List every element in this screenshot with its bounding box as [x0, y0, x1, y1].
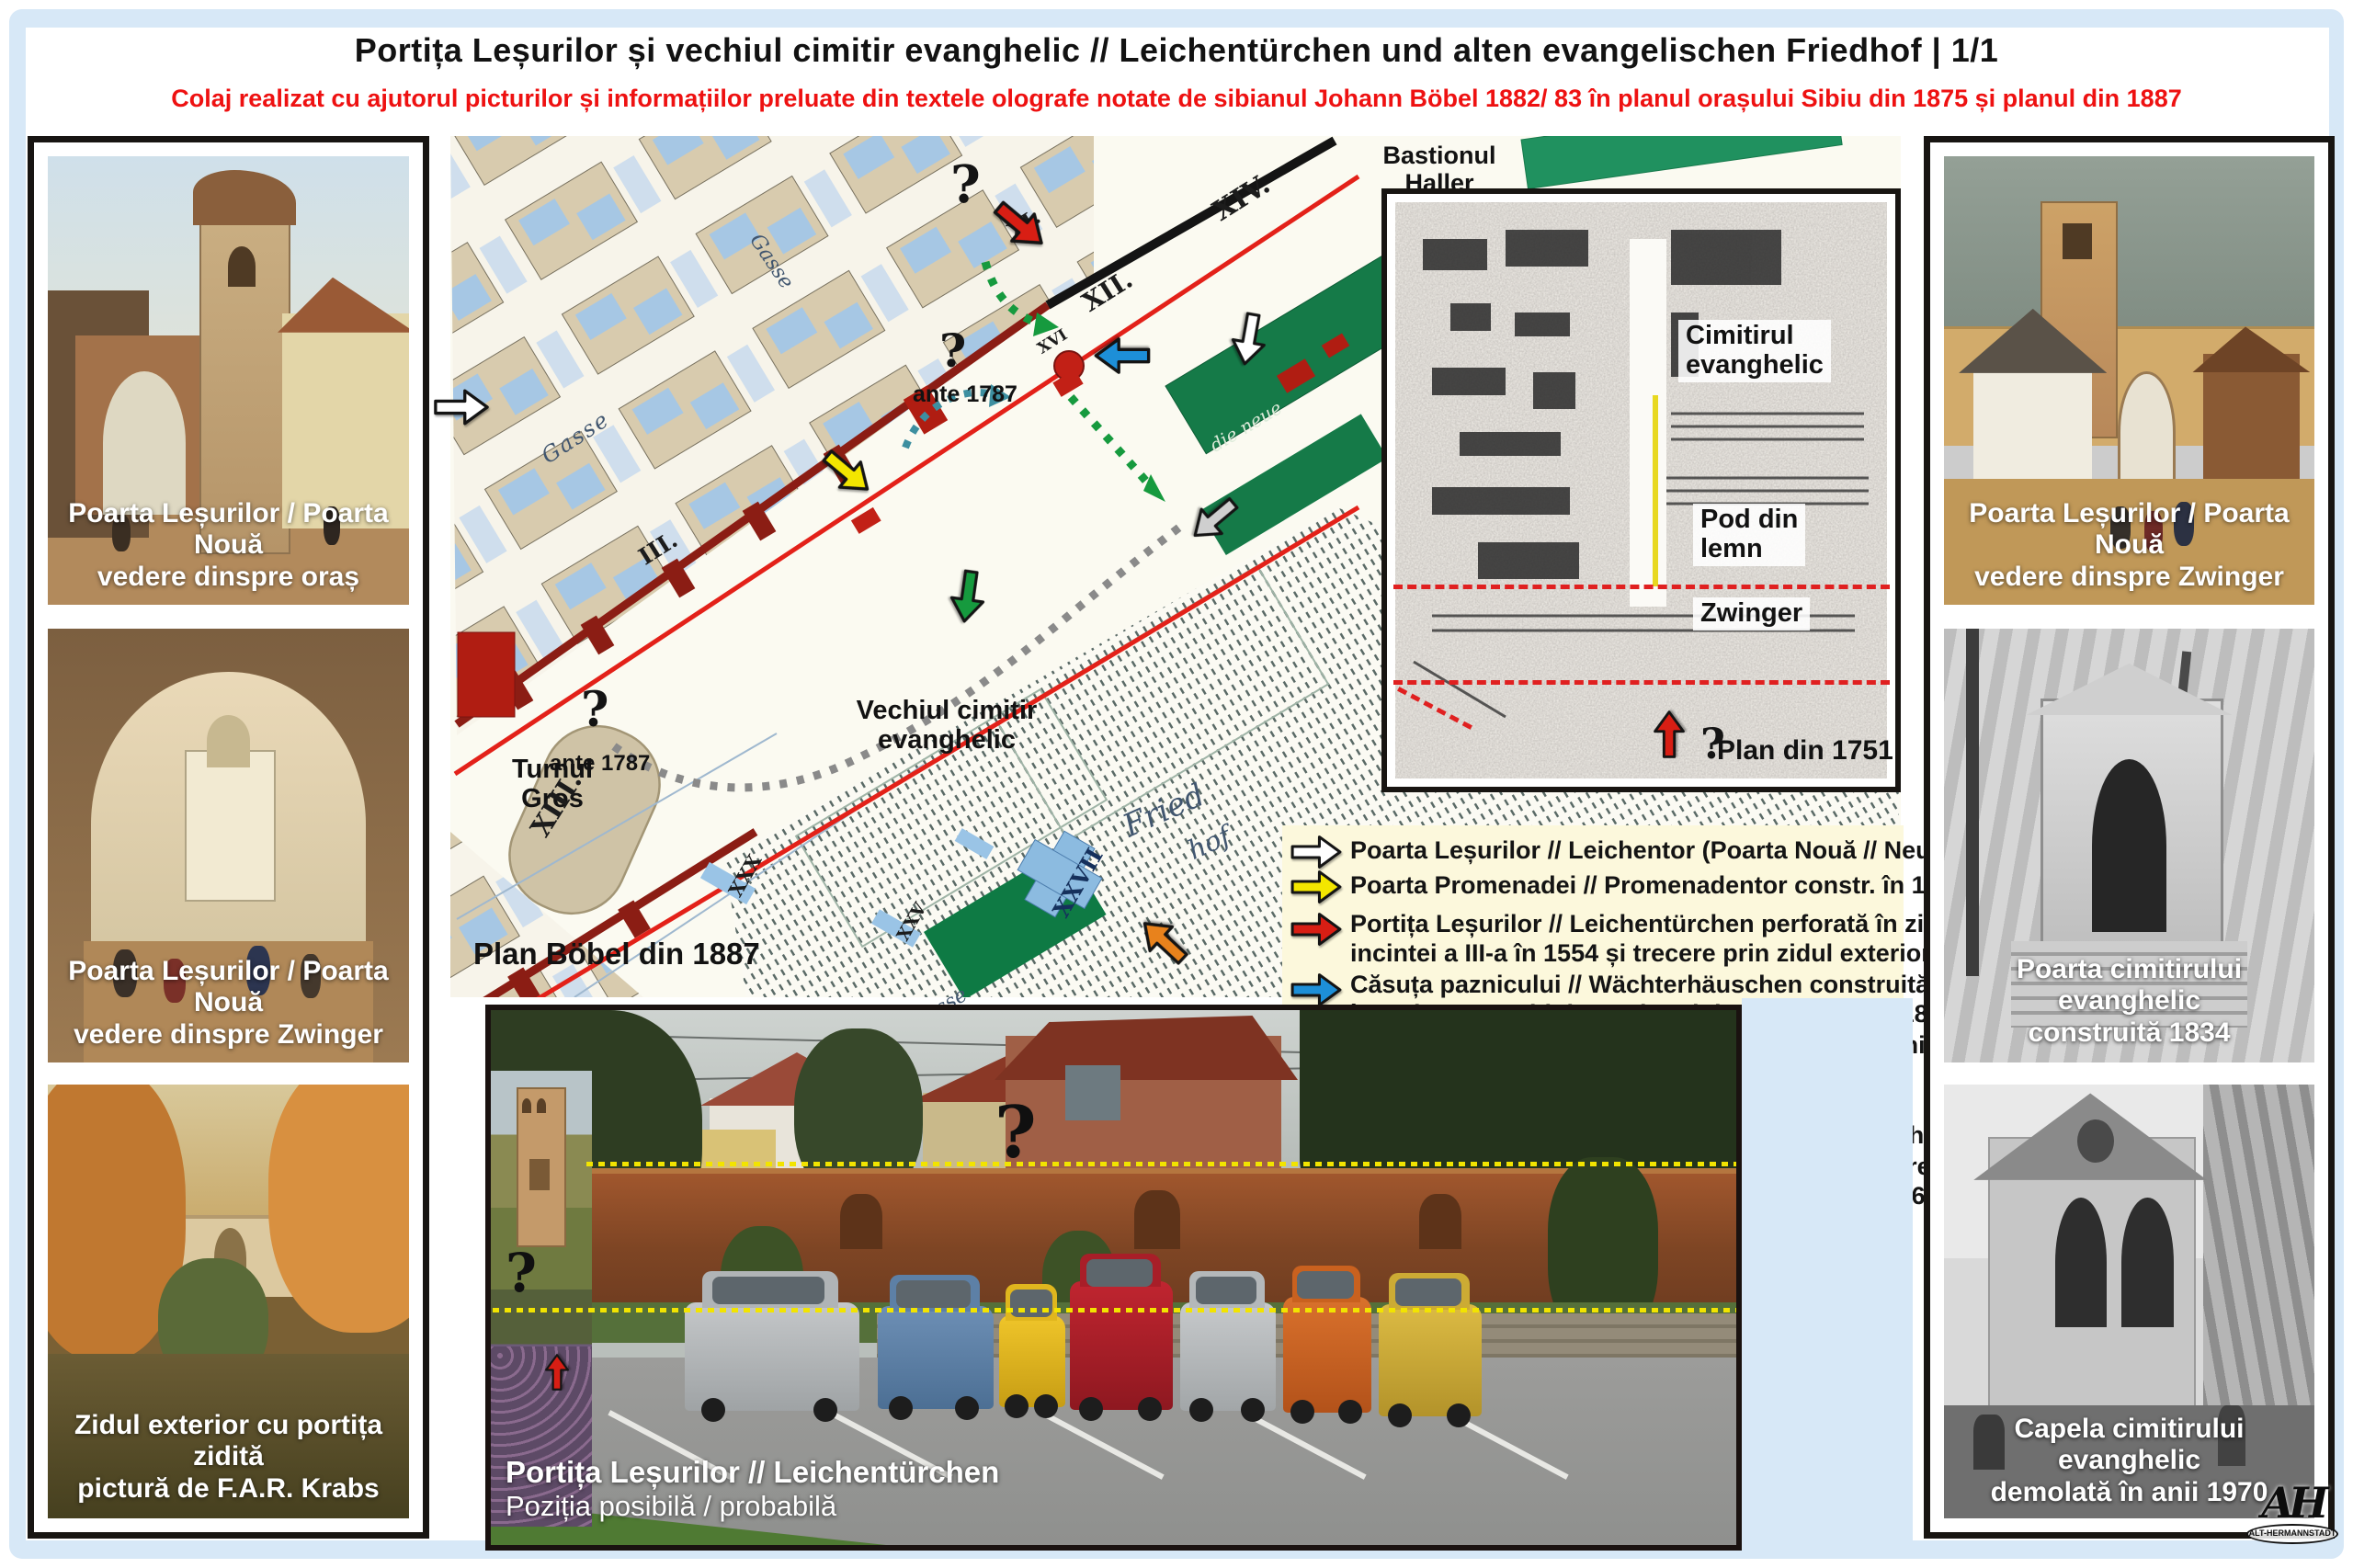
car-silver-golf	[1180, 1302, 1276, 1411]
inset-yellow-line	[1653, 395, 1658, 586]
tower-window	[529, 1159, 550, 1190]
car-red-minivan	[1070, 1281, 1173, 1410]
wall-arch-2	[1134, 1190, 1180, 1249]
painting-krabs: Zidul exterior cu portița zidităpictură …	[48, 1085, 409, 1518]
white-arrow-leichentor	[434, 388, 489, 426]
house-dormer	[1065, 1065, 1120, 1120]
yellow-dotted-line-top	[586, 1162, 1736, 1166]
chapel-window-2	[2121, 1198, 2173, 1328]
legend-white-arrow-icon	[1290, 835, 1343, 869]
label-ante-1787-a: ante 1787	[913, 382, 1017, 408]
left-caption-3: Zidul exterior cu portița zidităpictură …	[48, 1410, 409, 1506]
legend-item-yellow: Poarta Promenadei // Promenadentor const…	[1350, 871, 1967, 901]
question-mark-turnul: ?	[581, 682, 608, 738]
painting-tower-window	[2063, 223, 2092, 259]
overlay-question-mark: ?	[506, 1242, 537, 1304]
label-vechiul-cimitir: Vechiul cimitirevanghelic	[850, 697, 1043, 756]
painting-poarta-zwinger-left: Poarta Leșurilor / Poarta Nouăvedere din…	[48, 629, 409, 1062]
painting-poarta-oras: Poarta Leșurilor / Poarta Nouăvedere din…	[48, 156, 409, 605]
label-plan-bobel: Plan Böbel din 1887	[473, 937, 760, 971]
green-arrow-stone-steps	[945, 567, 991, 625]
photo-caption-line2: Poziția posibilă / probabilă	[506, 1490, 999, 1523]
photo-caption: Portița Leșurilor // Leichentürchen Pozi…	[506, 1455, 999, 1523]
photo-trees-gray	[2203, 1085, 2314, 1432]
painting-church-dome	[207, 715, 250, 767]
photo-caption-line1: Portița Leșurilor // Leichentürchen	[506, 1455, 999, 1490]
car-blue-hatchback	[878, 1306, 994, 1409]
poster-page: Portița Leșurilor și vechiul cimitir eva…	[0, 0, 2353, 1568]
tower-arch	[537, 1098, 546, 1113]
chapel-window-1	[2055, 1198, 2107, 1328]
legend-item-white: Poarta Leșurilor // Leichentor (Poarta N…	[1350, 836, 1972, 866]
alt-hermannstadt-logo: AH ALT-HERMANNSTADT	[2246, 1478, 2338, 1544]
yellow-dotted-line-bottom	[493, 1308, 1736, 1312]
painting-right-house	[282, 313, 409, 528]
legend-red-arrow-icon	[1290, 912, 1343, 947]
right-caption-1: Poarta Leșurilor / Poarta Nouăvedere din…	[1944, 498, 2314, 594]
gate-doorway	[2092, 759, 2166, 933]
car-yellow-mini	[999, 1315, 1065, 1407]
photo-question-mark: ?	[995, 1091, 1037, 1175]
legend-item-red: Portița Leșurilor // Leichentürchen perf…	[1350, 910, 1961, 969]
blue-patch	[1742, 998, 1913, 1540]
photo-frame: ? ? Portița Leșurilor // Leichentürchen …	[485, 1005, 1742, 1551]
legend-blue-arrow-icon	[1290, 972, 1343, 1007]
wall-arch-1	[840, 1194, 882, 1249]
logo-label: ALT-HERMANNSTADT	[2246, 1524, 2338, 1544]
legend-yellow-arrow-icon	[1290, 869, 1343, 904]
inset-red-dashed-2	[1393, 680, 1890, 685]
inset-red-dashed-1	[1393, 585, 1890, 589]
car-orange-compact	[1283, 1297, 1371, 1413]
inset-red-arrow	[1635, 710, 1703, 758]
photo-cemetery-chapel: Capela cimitirului evanghelicdemolată în…	[1944, 1085, 2314, 1518]
photo-leichenturchen-site: ? ? Portița Leșurilor // Leichentürchen …	[491, 1010, 1736, 1545]
inset-label-plan-1751: Plan din 1751	[1717, 735, 1893, 766]
inset-label-pod: Pod dinlemn	[1693, 504, 1805, 566]
left-caption-2: Poarta Leșurilor / Poarta Nouăvedere din…	[48, 956, 409, 1051]
wall-arch-3	[1419, 1194, 1461, 1249]
painting-church	[185, 750, 275, 901]
photo-tree-trunk	[1966, 629, 1979, 976]
tower-arch	[522, 1098, 531, 1113]
left-caption-1: Poarta Leșurilor / Poarta Nouăvedere din…	[48, 498, 409, 594]
painting-arch-opening	[103, 371, 186, 515]
inset-label-zwinger: Zwinger	[1693, 597, 1810, 631]
logo-monogram: AH	[2246, 1478, 2338, 1528]
question-mark-top: ?	[950, 154, 981, 215]
chapel-rosette	[2077, 1119, 2114, 1163]
right-caption-2: Poarta cimitirului evanghelicconstruită …	[1944, 954, 2314, 1050]
overlay-red-arrow	[520, 1354, 592, 1391]
inset-map-texture	[1395, 202, 1887, 778]
blue-arrow-wachterhaus	[1094, 336, 1151, 375]
car-gold-matiz	[1379, 1304, 1482, 1416]
inset-map-1751	[1395, 202, 1887, 778]
car-silver-estate	[685, 1302, 859, 1411]
inset-label-cimitirul: Cimitirulevanghelic	[1678, 320, 1831, 382]
photo-cemetery-gate-1834: Poarta cimitirului evanghelicconstruită …	[1944, 629, 2314, 1062]
painting-white-house	[1973, 362, 2092, 496]
painting-poarta-zwinger-right: Poarta Leșurilor / Poarta Nouăvedere din…	[1944, 156, 2314, 605]
painting-tower-window	[228, 246, 256, 287]
question-mark-mid: ?	[939, 324, 966, 378]
painting-gate-arch	[2118, 371, 2175, 494]
